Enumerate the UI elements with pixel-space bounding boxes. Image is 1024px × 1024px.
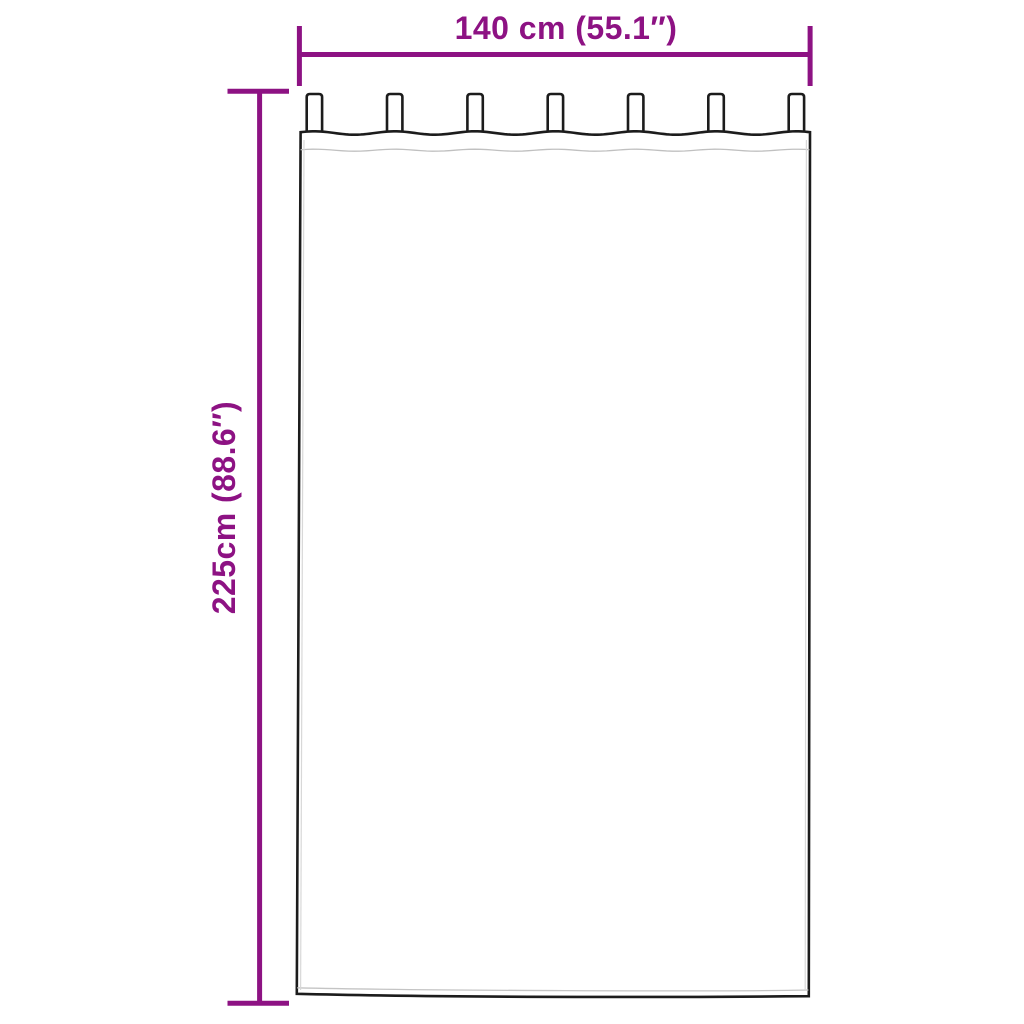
- svg-text:140 cm (55.1″): 140 cm (55.1″): [455, 10, 678, 46]
- svg-text:225cm (88.6″): 225cm (88.6″): [206, 401, 242, 614]
